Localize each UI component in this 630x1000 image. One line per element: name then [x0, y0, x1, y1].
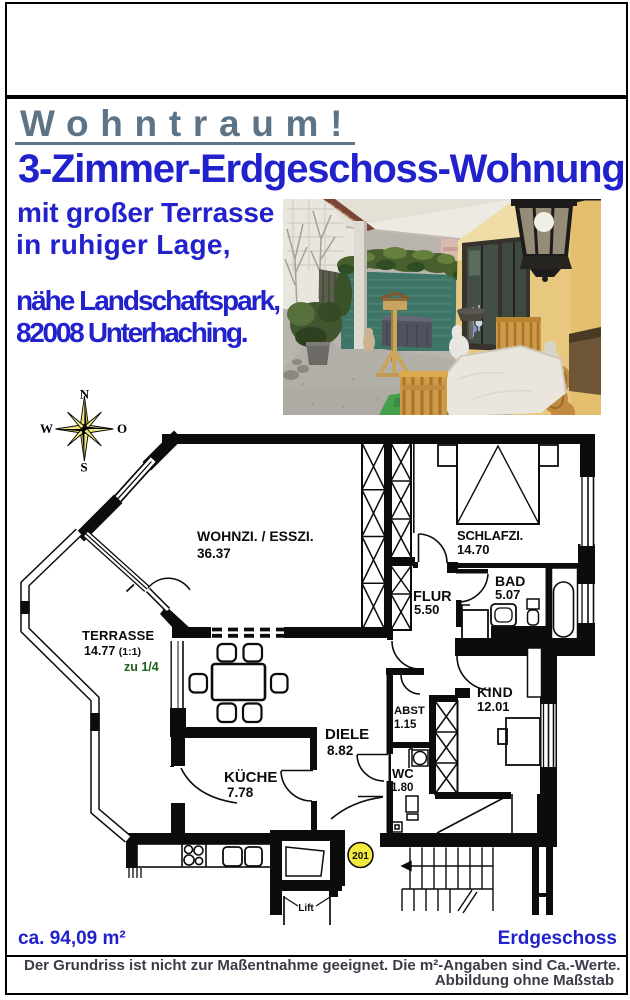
svg-text:5.07: 5.07: [495, 587, 520, 602]
svg-text:8.82: 8.82: [327, 743, 353, 758]
svg-text:5.50: 5.50: [414, 602, 439, 617]
svg-text:1.80: 1.80: [391, 782, 413, 794]
svg-text:KIND: KIND: [477, 684, 513, 700]
svg-text:DIELE: DIELE: [325, 726, 369, 743]
svg-text:36.37: 36.37: [197, 546, 231, 561]
svg-text:ABST: ABST: [394, 705, 425, 717]
svg-text:7.78: 7.78: [227, 785, 254, 800]
svg-text:TERRASSE: TERRASSE: [82, 628, 155, 643]
svg-text:WC: WC: [392, 766, 414, 781]
svg-text:Lift: Lift: [298, 903, 314, 914]
svg-text:KÜCHE: KÜCHE: [224, 769, 277, 786]
svg-text:201: 201: [352, 851, 369, 862]
svg-text:SCHLAFZI.: SCHLAFZI.: [457, 528, 523, 543]
svg-text:WOHNZI. / ESSZI.: WOHNZI. / ESSZI.: [197, 528, 314, 544]
svg-text:12.01: 12.01: [477, 699, 510, 714]
svg-text:zu 1/4: zu 1/4: [124, 660, 159, 674]
svg-text:14.70: 14.70: [457, 542, 490, 557]
svg-text:14.77 (1:1): 14.77 (1:1): [84, 644, 141, 658]
svg-text:1.15: 1.15: [394, 719, 417, 731]
